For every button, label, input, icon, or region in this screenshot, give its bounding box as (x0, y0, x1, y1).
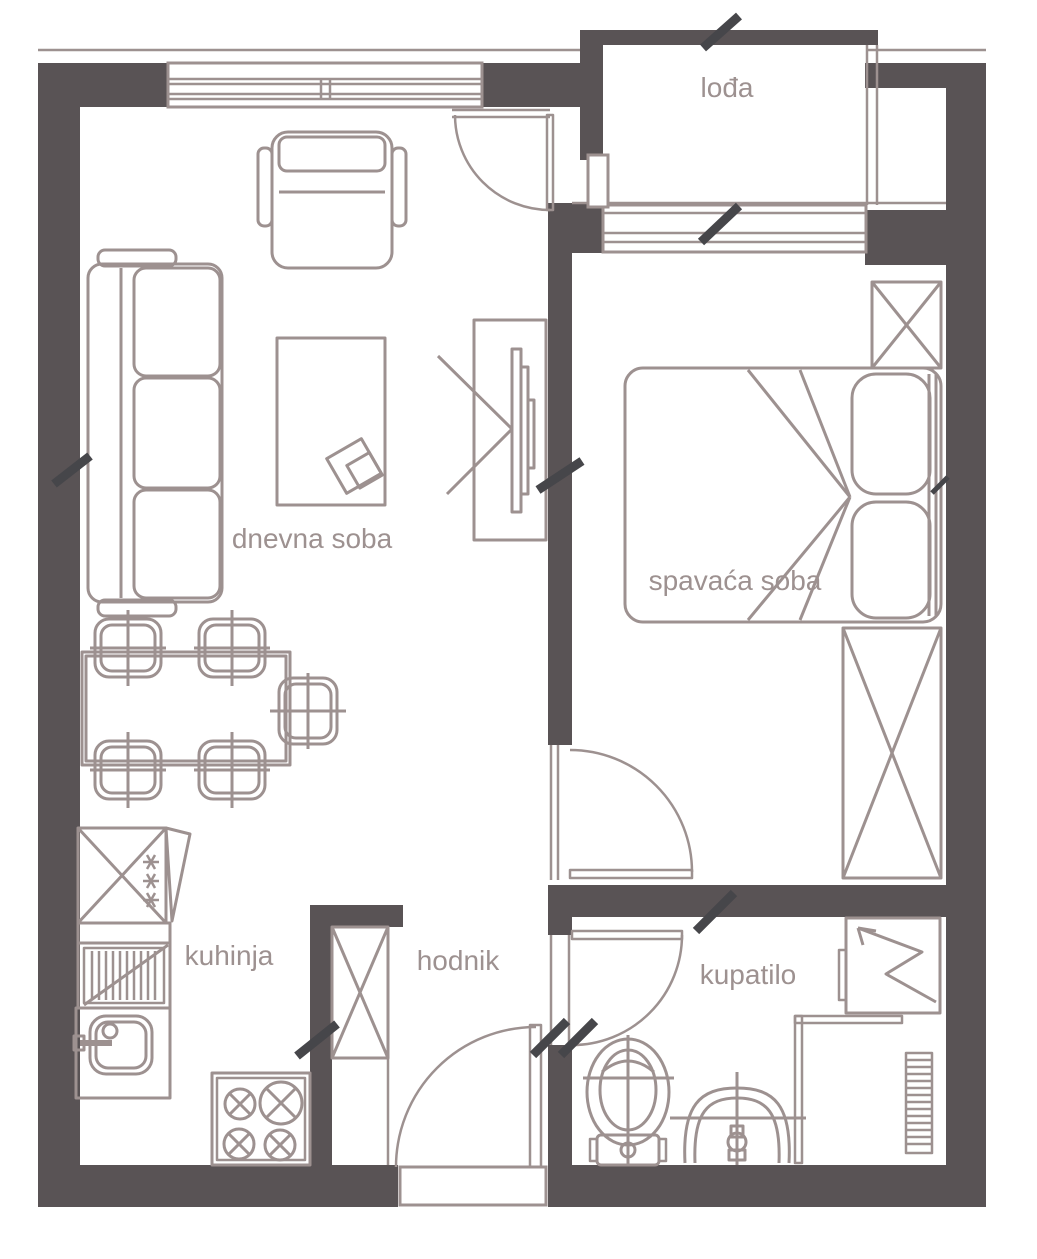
sofa (88, 250, 222, 616)
room-label-bedroom: spavaća soba (649, 565, 822, 596)
entrance-door (396, 1025, 546, 1205)
bathroom-partition (795, 1016, 902, 1163)
fridge (78, 828, 190, 923)
floor-plan-page: lođa dnevna soba spavaća soba kuhinja ho… (0, 0, 1037, 1259)
wardrobe-bottom (843, 628, 941, 878)
room-label-living-room: dnevna soba (232, 523, 393, 554)
room-label-hallway: hodnik (417, 945, 501, 976)
tv-unit (438, 320, 546, 540)
dining-chairs (90, 610, 346, 808)
bathroom-door (551, 931, 682, 1045)
kitchen-counter (78, 923, 170, 943)
stove (212, 1073, 310, 1165)
room-label-loggia: lođa (701, 72, 754, 103)
loggia-door (452, 110, 553, 210)
living-room-window (168, 63, 482, 107)
coffee-table (277, 338, 385, 505)
radiator (906, 1053, 932, 1153)
bathroom-sink (670, 1072, 806, 1165)
kitchen-sink (74, 1008, 170, 1098)
toilet (583, 1035, 674, 1165)
hallway-closet (332, 927, 388, 1165)
dishwasher (78, 943, 170, 1008)
armchair (258, 132, 406, 268)
pillow (852, 374, 930, 494)
bedroom-door (551, 745, 692, 880)
loggia-partitions (588, 45, 877, 207)
wardrobe-top (872, 282, 941, 368)
floor-plan-canvas: lođa dnevna soba spavaća soba kuhinja ho… (0, 0, 1037, 1259)
room-label-kitchen: kuhinja (185, 940, 274, 971)
pillow (852, 502, 930, 618)
room-label-bathroom: kupatilo (700, 959, 797, 990)
shower (839, 918, 940, 1013)
